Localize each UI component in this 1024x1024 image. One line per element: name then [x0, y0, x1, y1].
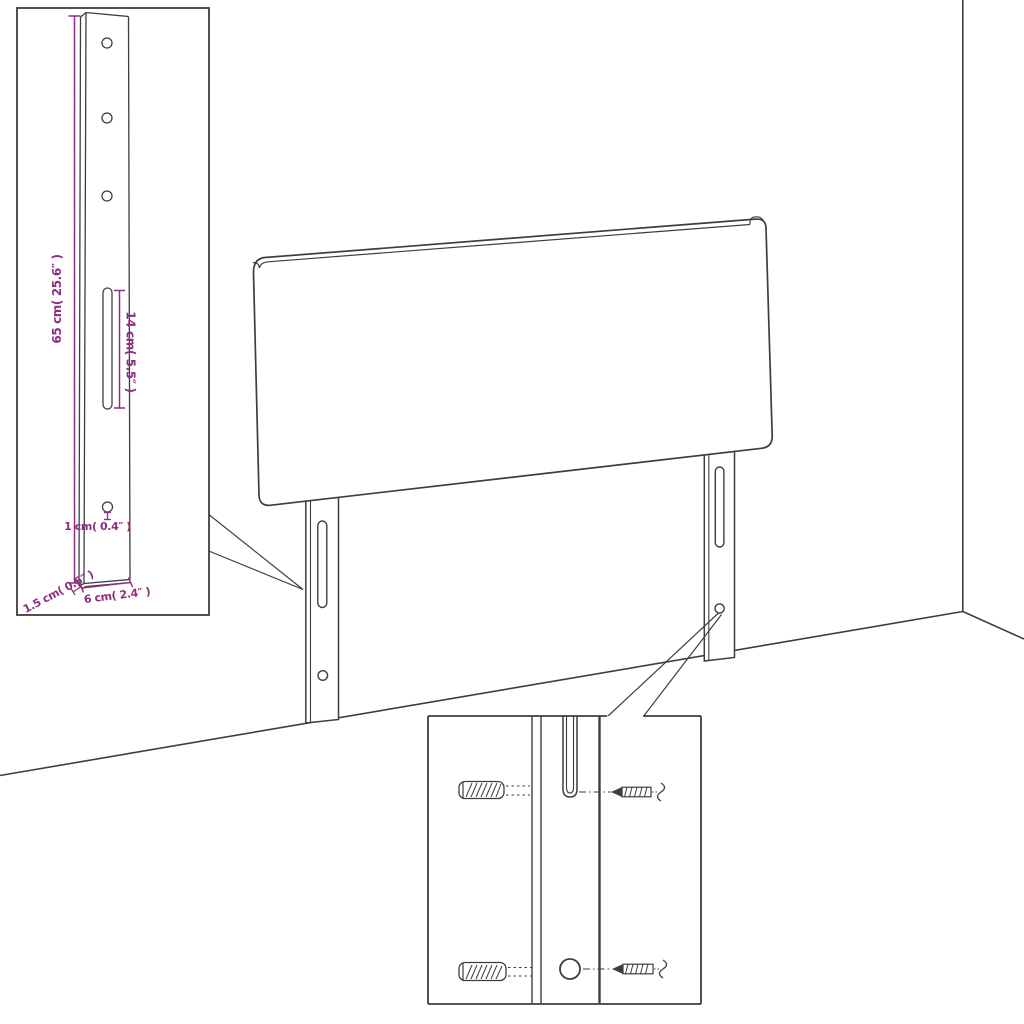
left-leg — [306, 497, 339, 723]
diagram-canvas: 65 cm( 25.6″ ) 14 cm( 5.5″ ) 1 cm( 0.4″ … — [0, 0, 1024, 1024]
callout-line — [607, 613, 719, 717]
bracket-inset: 65 cm( 25.6″ ) 14 cm( 5.5″ ) 1 cm( 0.4″ … — [17, 8, 209, 616]
callout-lines-left — [209, 515, 303, 590]
dim-hole-label: 1 cm( 0.4″ ) — [64, 520, 131, 533]
headboard-panel-outline — [253, 219, 772, 505]
callout-line — [643, 615, 722, 718]
callout-line — [209, 551, 303, 590]
right-leg — [704, 442, 734, 661]
dim-height-label: 65 cm( 25.6″ ) — [50, 254, 64, 343]
hardware-inset — [428, 716, 701, 1004]
floor-line-right — [963, 612, 1024, 640]
callout-line — [209, 515, 303, 590]
headboard-assembly-diagram: 65 cm( 25.6″ ) 14 cm( 5.5″ ) 1 cm( 0.4″ … — [0, 0, 1024, 1024]
headboard-panel — [253, 217, 772, 506]
dim-slot-label: 14 cm( 5.5″ ) — [124, 311, 138, 392]
